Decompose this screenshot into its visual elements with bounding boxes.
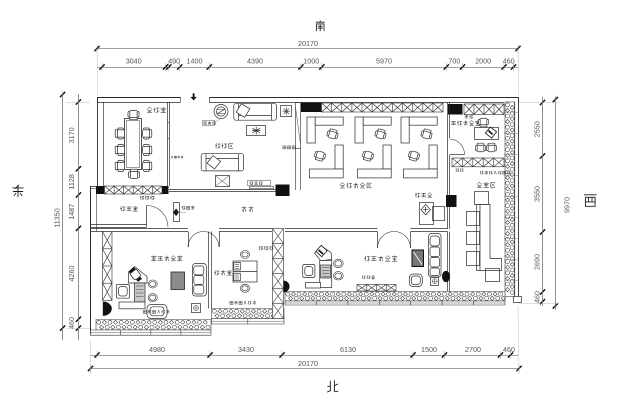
svg-text:3430: 3430 xyxy=(238,345,254,354)
svg-text:1487: 1487 xyxy=(67,204,76,220)
svg-text:1500: 1500 xyxy=(421,345,437,354)
svg-text:5970: 5970 xyxy=(376,57,392,66)
svg-text:2690: 2690 xyxy=(533,254,542,270)
svg-text:11350: 11350 xyxy=(53,208,62,227)
svg-text:700: 700 xyxy=(448,57,460,66)
svg-text:2000: 2000 xyxy=(475,57,491,66)
svg-text:3550: 3550 xyxy=(533,186,542,202)
svg-text:2550: 2550 xyxy=(533,121,542,137)
svg-text:4980: 4980 xyxy=(149,345,165,354)
svg-text:6130: 6130 xyxy=(340,345,356,354)
svg-text:20170: 20170 xyxy=(298,359,318,368)
svg-text:4390: 4390 xyxy=(247,57,263,66)
svg-text:3170: 3170 xyxy=(67,127,76,143)
svg-text:9970: 9970 xyxy=(563,197,572,213)
svg-text:460: 460 xyxy=(67,317,76,329)
svg-text:460: 460 xyxy=(503,57,515,66)
svg-text:20170: 20170 xyxy=(298,39,318,48)
svg-text:2700: 2700 xyxy=(465,345,481,354)
svg-text:1400: 1400 xyxy=(187,57,203,66)
svg-text:4260: 4260 xyxy=(67,266,76,282)
svg-text:1128: 1128 xyxy=(67,174,76,189)
svg-text:490: 490 xyxy=(168,57,180,66)
svg-text:460: 460 xyxy=(533,291,542,303)
svg-text:3040: 3040 xyxy=(126,57,142,66)
svg-text:1000: 1000 xyxy=(303,57,319,66)
svg-text:460: 460 xyxy=(503,345,515,354)
